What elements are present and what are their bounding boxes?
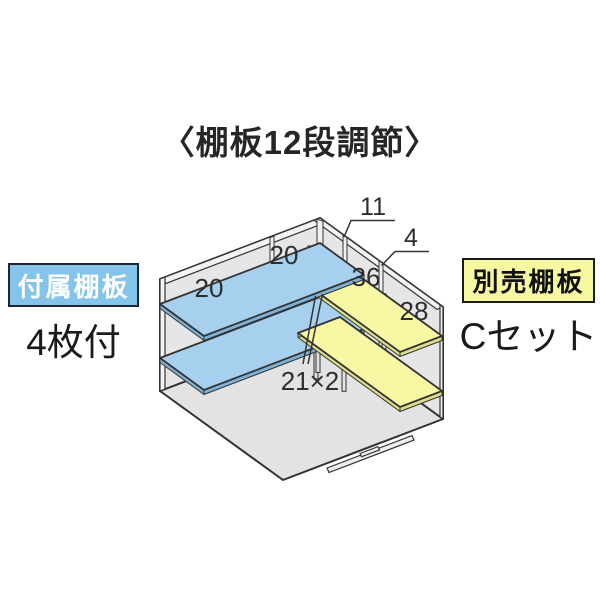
right-wall-end-cap [440, 305, 443, 419]
wall-dim-label-4: 4 [404, 224, 418, 252]
shed-isometric-diagram: 20 20 36 28 11 4 21×2 [0, 0, 600, 600]
leader-line-4 [382, 252, 430, 266]
product-diagram-page: 〈棚板12段調節〉 付属棚板 4枚付 別売棚板 Cセット [0, 0, 600, 600]
shelf-label-36: 36 [352, 262, 381, 292]
wall-dim-label-11: 11 [360, 193, 386, 221]
shelf-label-20-left: 20 [195, 273, 224, 303]
shelf-label-28: 28 [400, 296, 429, 326]
shelf-label-20-right: 20 [270, 240, 299, 270]
leader-line-11 [344, 221, 395, 238]
left-wall-end-cap [160, 277, 165, 391]
pitch-label-21x2: 21×2 [281, 366, 340, 396]
